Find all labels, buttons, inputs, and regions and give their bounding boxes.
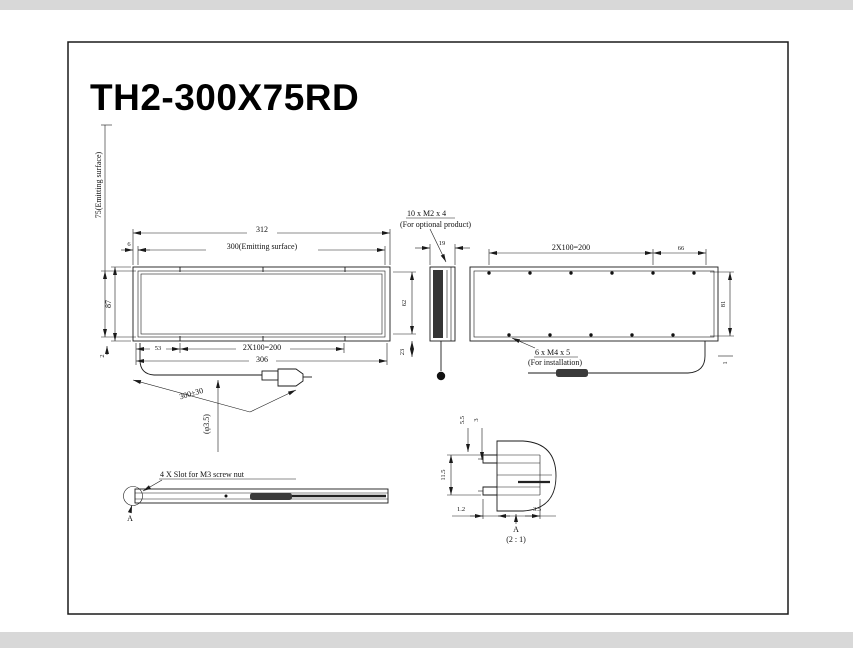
dim-depth: 19 bbox=[439, 240, 446, 247]
callout-install-line1: 6 x M4 x 5 bbox=[535, 348, 570, 357]
dim-rear-height: 81 bbox=[720, 301, 727, 308]
detail-view-scale: (2 : 1) bbox=[506, 535, 526, 544]
cable-connector bbox=[262, 369, 312, 386]
rear-view bbox=[470, 267, 718, 377]
cad-drawing: TH2-300X75RD bbox=[0, 0, 853, 648]
front-view bbox=[133, 267, 390, 386]
dim-detail-bottom-2: 3.5 bbox=[533, 506, 541, 513]
detail-view-label: A bbox=[513, 525, 519, 534]
slot-cable-tag bbox=[250, 493, 292, 500]
detail-marker-label: A bbox=[127, 514, 133, 523]
dim-bottom-left: 53 bbox=[155, 345, 162, 352]
dim-rear-hole-spacing: 2X100=200 bbox=[552, 243, 590, 252]
drawing-page: TH2-300X75RD bbox=[0, 0, 853, 648]
cable-tag bbox=[556, 369, 588, 377]
dim-bottom-spacing: 2X100=200 bbox=[243, 343, 281, 352]
dim-rear-bottom-offset: 1 bbox=[722, 361, 729, 364]
dim-overall-width: 312 bbox=[256, 225, 268, 234]
side-view-dimensions: 19 62 23 bbox=[393, 240, 470, 357]
dim-detail-top-2: 3 bbox=[473, 418, 480, 421]
dim-corner: 2 bbox=[99, 354, 106, 357]
callout-optional-holes: 10 x M2 x 4 (For optional product) bbox=[400, 209, 471, 262]
dim-cable-length: 300±30 bbox=[178, 386, 204, 401]
dim-cable-diameter: (φ3.5) bbox=[202, 414, 211, 434]
detail-view-a: 5.5 3 11.5 1.2 3.5 A (2 : 1) bbox=[440, 416, 556, 544]
callout-install-holes: 6 x M4 x 5 (For installation) bbox=[512, 338, 582, 367]
rear-holes-top bbox=[487, 271, 695, 274]
detail-marker-circle bbox=[124, 487, 143, 506]
dim-bottom-span: 306 bbox=[256, 355, 268, 364]
drawing-frame bbox=[68, 42, 788, 614]
dim-detail-bottom-1: 1.2 bbox=[457, 506, 465, 513]
slot-label: 4 X Slot for M3 screw nut bbox=[160, 470, 245, 479]
rear-view-dimensions: 2X100=200 66 81 1 10 x M2 x 4 (For optio… bbox=[400, 209, 734, 367]
dim-detail-top-1: 5.5 bbox=[459, 416, 466, 424]
callout-optional-line1: 10 x M2 x 4 bbox=[407, 209, 446, 218]
rear-holes-bottom bbox=[507, 333, 674, 336]
front-view-dimensions: 312 300(Emitting surface) 6 87 75(Emitti… bbox=[94, 125, 390, 452]
dim-emitting-width: 300(Emitting surface) bbox=[227, 242, 298, 251]
dim-side-lower: 23 bbox=[399, 349, 406, 356]
dim-overall-height: 87 bbox=[104, 300, 113, 308]
drawing-title: TH2-300X75RD bbox=[90, 77, 359, 118]
dim-edge-offset: 6 bbox=[127, 241, 131, 248]
dim-rear-right-offset: 66 bbox=[678, 245, 685, 252]
dim-detail-side: 11.5 bbox=[440, 469, 447, 480]
dim-side-inner: 62 bbox=[401, 300, 408, 307]
slot-view: A 4 X Slot for M3 screw nut bbox=[124, 470, 389, 523]
callout-install-line2: (For installation) bbox=[528, 358, 582, 367]
callout-optional-line2: (For optional product) bbox=[400, 220, 471, 229]
dim-emitting-height: 75(Emitting surface) bbox=[94, 151, 103, 218]
side-view bbox=[430, 267, 455, 380]
